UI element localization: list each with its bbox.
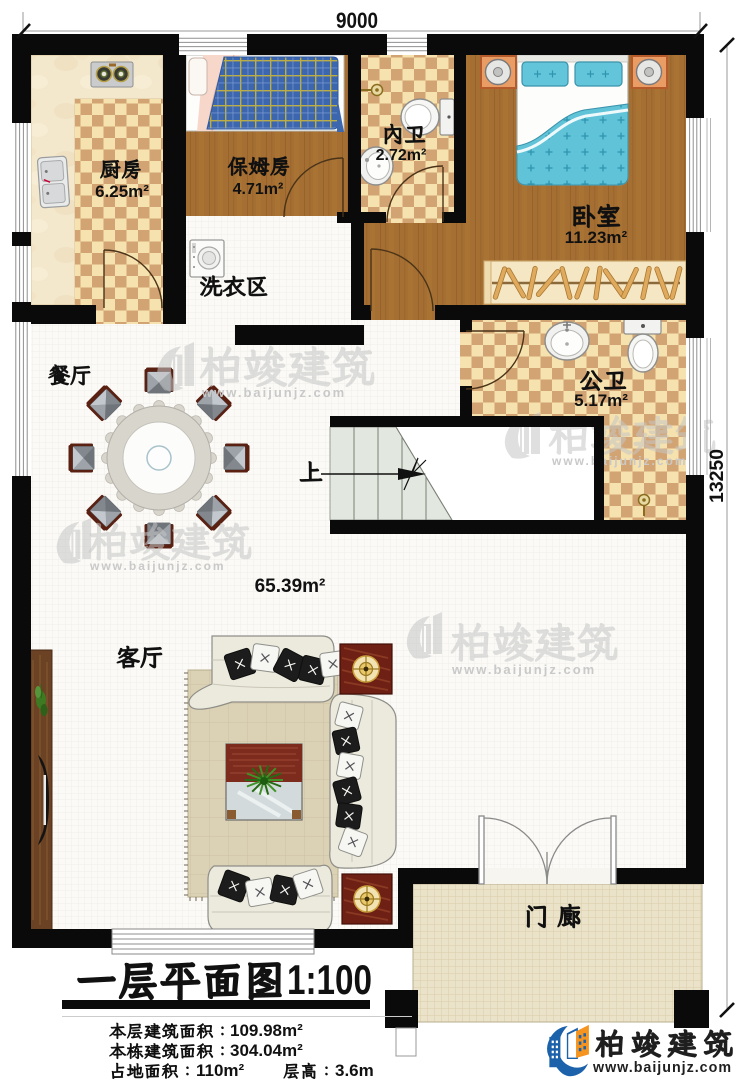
svg-text:6.25m²: 6.25m² bbox=[95, 182, 149, 201]
svg-text:1:100: 1:100 bbox=[287, 956, 372, 1003]
svg-text:304.04m²: 304.04m² bbox=[230, 1041, 303, 1060]
svg-text:www.baijunjz.com: www.baijunjz.com bbox=[89, 559, 226, 573]
svg-text:65.39m²: 65.39m² bbox=[255, 576, 326, 597]
svg-text:2.72m²: 2.72m² bbox=[376, 147, 427, 164]
svg-text:13250: 13250 bbox=[707, 449, 728, 503]
svg-text:www.baijunjz.com: www.baijunjz.com bbox=[592, 1060, 732, 1076]
svg-text:3.6m: 3.6m bbox=[335, 1061, 374, 1080]
svg-text:5.17m²: 5.17m² bbox=[574, 391, 628, 410]
svg-text:109.98m²: 109.98m² bbox=[230, 1021, 303, 1040]
svg-text:11.23m²: 11.23m² bbox=[565, 228, 628, 247]
svg-text:110m²: 110m² bbox=[196, 1061, 245, 1080]
svg-text:9000: 9000 bbox=[336, 8, 378, 33]
svg-text:www.baijunjz.com: www.baijunjz.com bbox=[201, 385, 346, 400]
svg-text:www.baijunjz.com: www.baijunjz.com bbox=[551, 454, 688, 468]
svg-text:4.71m²: 4.71m² bbox=[233, 181, 284, 198]
svg-text:www.baijunjz.com: www.baijunjz.com bbox=[451, 662, 596, 677]
